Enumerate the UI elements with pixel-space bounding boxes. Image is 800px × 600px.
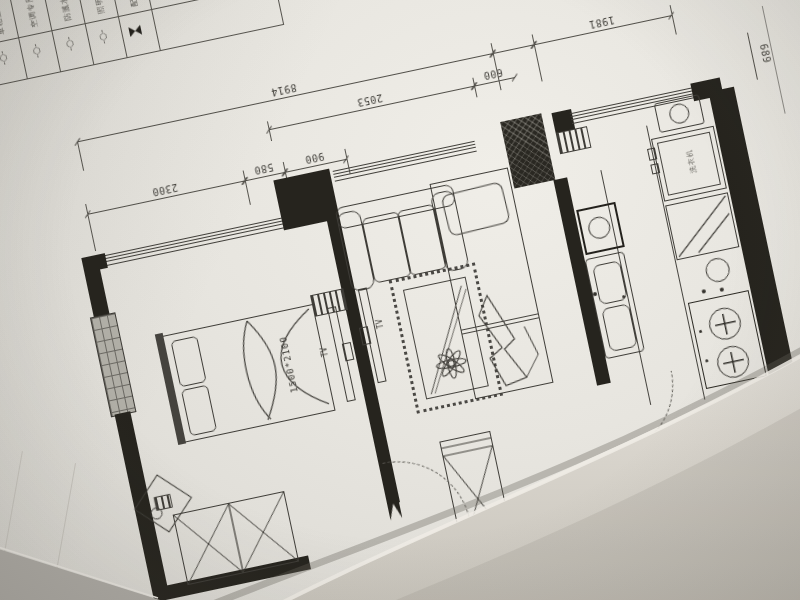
photo-vignette bbox=[0, 0, 800, 600]
photo-of-floor-plan: 单相二极插座 单相三极插座 空调专用插座 防溅水插座 照明双控开关 配电箱 -○… bbox=[0, 0, 800, 600]
